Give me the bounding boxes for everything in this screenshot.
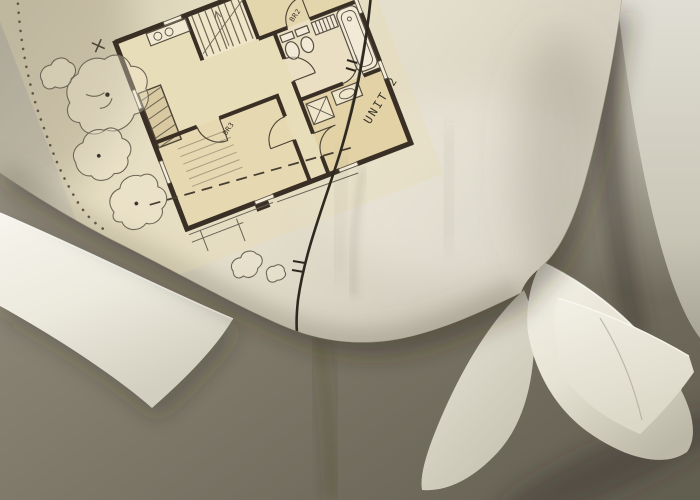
blueprint-photo: BR2 BR3 UNIT 2	[0, 0, 700, 500]
photo-canvas: BR2 BR3 UNIT 2	[0, 0, 700, 500]
